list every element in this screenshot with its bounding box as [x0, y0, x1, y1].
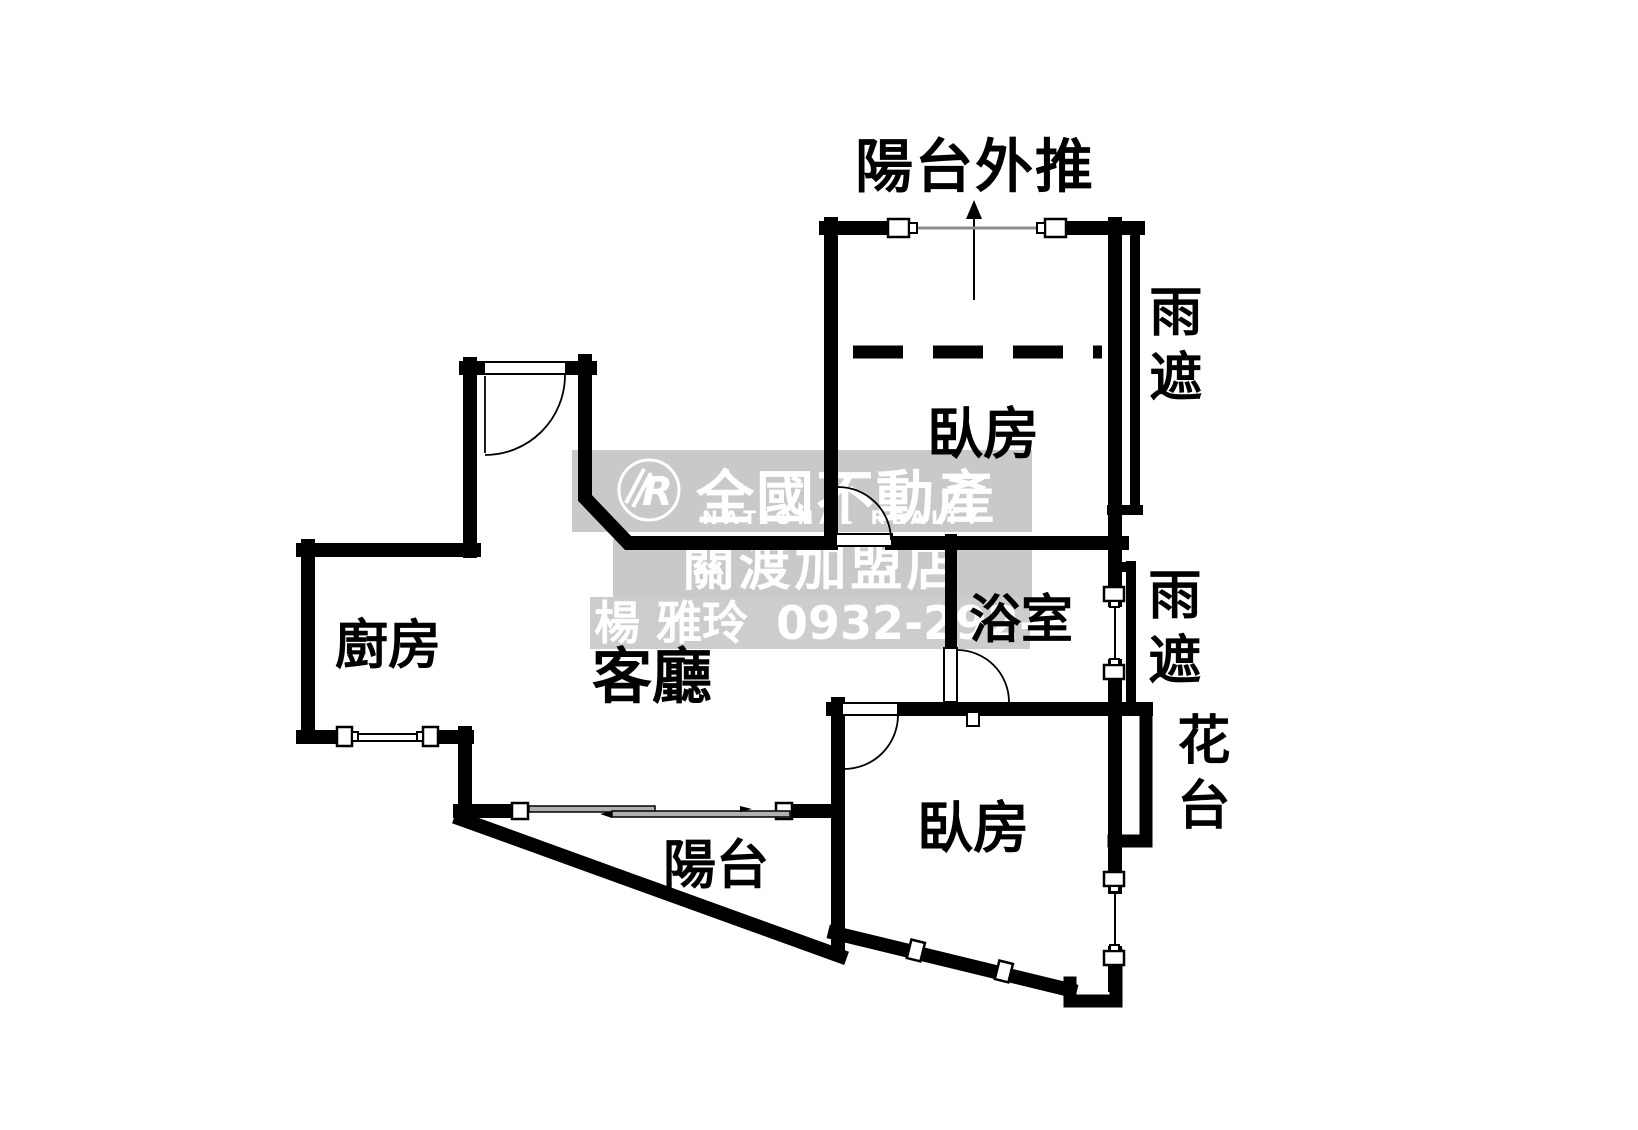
labels-layer: 陽台外推 臥房 雨遮 浴室 雨遮 花台 廚房 客廳 陽台 臥房 — [0, 0, 1638, 1130]
label-flower-stand: 花台 — [1171, 712, 1227, 842]
label-living-room: 客廳 — [592, 647, 712, 710]
floor-plan: R 全國不動產 NATIONAL REALTY 關渡加盟店 楊 雅玲 0932-… — [0, 0, 1638, 1130]
label-bedroom-lower: 臥房 — [917, 801, 1029, 860]
label-balcony-pushout: 陽台外推 — [855, 137, 1095, 198]
label-rain-shelter-lower: 雨遮 — [1142, 567, 1198, 697]
label-balcony: 陽台 — [663, 838, 769, 894]
label-bathroom: 浴室 — [969, 594, 1073, 649]
label-kitchen: 廚房 — [335, 618, 441, 674]
label-rain-shelter-upper: 雨遮 — [1143, 284, 1199, 414]
label-bedroom-upper: 臥房 — [927, 407, 1039, 466]
